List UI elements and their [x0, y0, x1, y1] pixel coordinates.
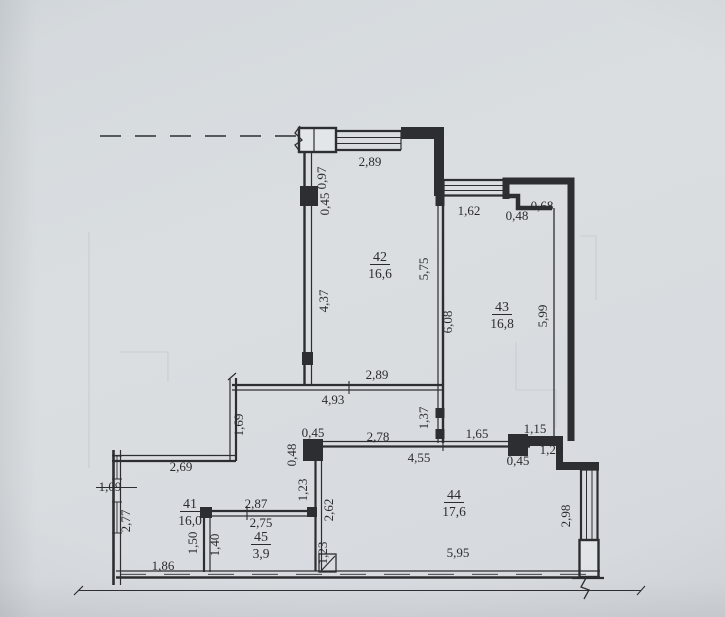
wall-right-44 [572, 470, 604, 599]
dimension-label: 2,98 [558, 505, 573, 528]
dimension-label: 2,89 [359, 154, 382, 169]
ghost-print [89, 232, 596, 468]
column [302, 352, 313, 365]
room-number: 45 [254, 530, 268, 545]
room-area: 16,6 [368, 266, 392, 281]
dimension-label: 1,50 [185, 532, 200, 555]
dimension-label: 1,37 [416, 406, 431, 429]
dimension-label: 2,75 [250, 515, 273, 530]
floorplan-photo: 2,890,970,451,620,480,685,756,085,994,37… [0, 0, 725, 617]
dimension-label: 1,23 [315, 542, 330, 565]
dimension-label: 5,99 [535, 305, 550, 328]
dimension-label: 4,93 [322, 392, 345, 407]
room-number: 43 [495, 300, 509, 315]
dimension-label: 0,45 [317, 193, 332, 216]
dimension-label: 1,09 [99, 479, 122, 494]
wall-step-left [112, 373, 236, 461]
dimension-label: 2,77 [118, 509, 133, 532]
dimension-label: 2,69 [170, 459, 193, 474]
dimension-label: 1,65 [466, 426, 489, 441]
dimension-label: 1,62 [458, 203, 481, 218]
wall-block-top [299, 128, 336, 152]
window-top-42 [336, 131, 401, 150]
dimension-label: 0,45 [507, 453, 530, 468]
column-middle [303, 439, 323, 461]
dimension-label: 0,68 [531, 198, 554, 213]
dimension-label: 2,78 [367, 429, 390, 444]
dimension-label: 1,40 [207, 534, 222, 557]
dimension-label: 4,55 [408, 450, 431, 465]
room-area: 16,0 [178, 513, 202, 528]
room-area: 3,9 [253, 546, 270, 561]
room-number: 42 [373, 250, 387, 265]
wall-bottom-exterior [74, 571, 645, 595]
labels-layer: 2,890,970,451,620,480,685,756,085,994,37… [99, 154, 573, 573]
dimension-label: 4,37 [316, 289, 331, 312]
floor-plan-svg: 2,890,970,451,620,480,685,756,085,994,37… [0, 0, 725, 617]
wall-solid-top [401, 127, 444, 196]
window-top-43 [444, 180, 506, 196]
dimension-label: 2,89 [366, 367, 389, 382]
dimension-label: 0,97 [314, 166, 329, 189]
dimension-label: 2,87 [245, 496, 268, 511]
dimension-label: 5,95 [447, 545, 470, 560]
room-area: 16,8 [490, 316, 514, 331]
dimension-label: 1,20 [540, 442, 563, 457]
dimension-arrow [228, 373, 236, 380]
room-area: 17,6 [442, 504, 466, 519]
dimension-label: 1,69 [231, 414, 246, 437]
dimension-label: 6,08 [440, 311, 455, 334]
dimension-label: 5,75 [416, 258, 431, 281]
dimension-label: 2,62 [321, 499, 336, 522]
room-number: 41 [183, 497, 197, 512]
room-number: 44 [447, 488, 461, 503]
dimension-label: 0,48 [284, 444, 299, 467]
dimension-label: 1,23 [295, 479, 310, 502]
dimension-label: 0,45 [302, 425, 325, 440]
dimension-label: 1,86 [152, 558, 175, 573]
break-symbol-bottom-right [581, 578, 589, 599]
dimension-label: 1,15 [524, 421, 547, 436]
wall-corridor-top [323, 437, 530, 451]
dimension-label: 0,48 [506, 208, 529, 223]
